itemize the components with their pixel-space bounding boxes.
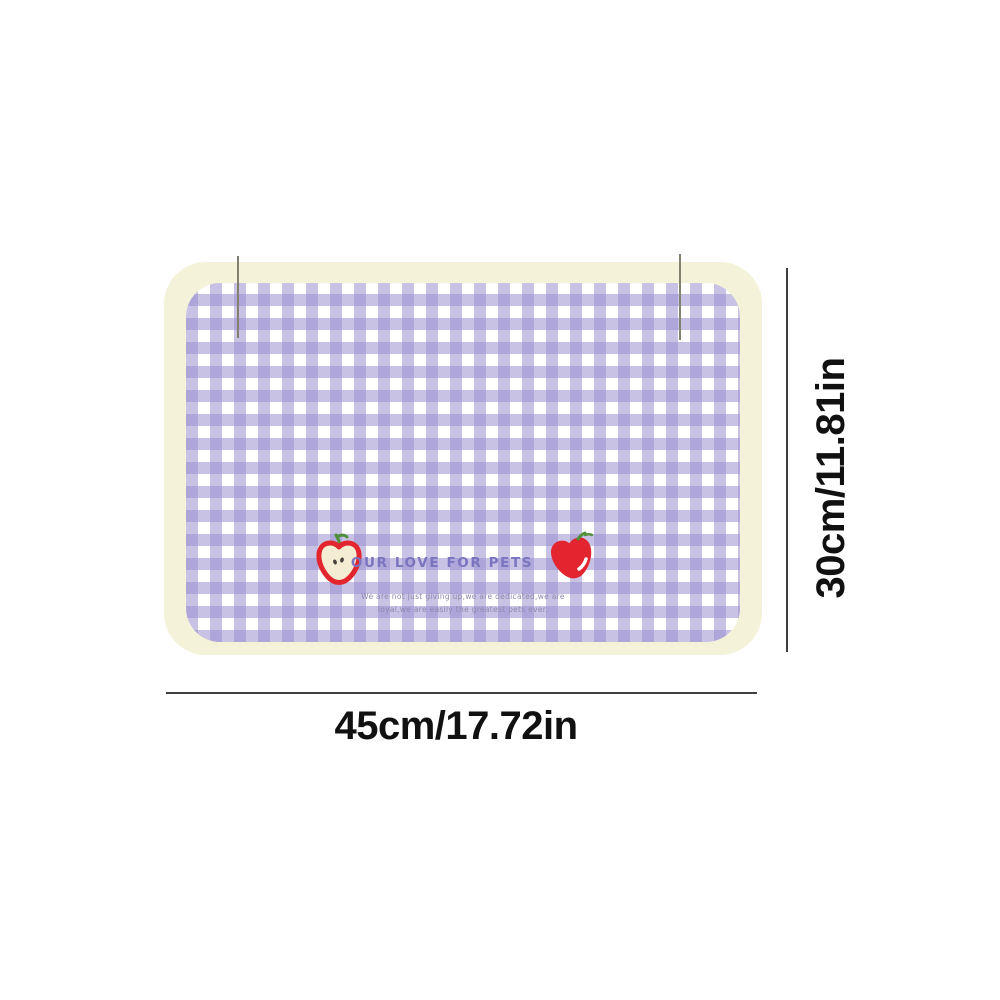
height-dimension-label: 30cm/11.81in (809, 318, 857, 638)
gingham-surface: OUR LOVE FOR PETS We are not just giving… (186, 283, 740, 642)
height-dimension-line (786, 268, 788, 652)
product-image-canvas: OUR LOVE FOR PETS We are not just giving… (0, 0, 1000, 1000)
width-dimension-label: 45cm/17.72in (296, 704, 616, 749)
hanging-string-left (237, 256, 239, 338)
hanging-string-right (679, 254, 681, 340)
brand-text: OUR LOVE FOR PETS (342, 555, 542, 571)
red-apple-icon (548, 529, 596, 579)
pet-mat: OUR LOVE FOR PETS We are not just giving… (164, 262, 762, 655)
tagline-line-1: We are not just giving up,we are dedicat… (186, 592, 740, 601)
width-dimension-line (166, 692, 757, 694)
tagline-line-2: loyal,we are easily the greatest pets ev… (186, 605, 740, 614)
